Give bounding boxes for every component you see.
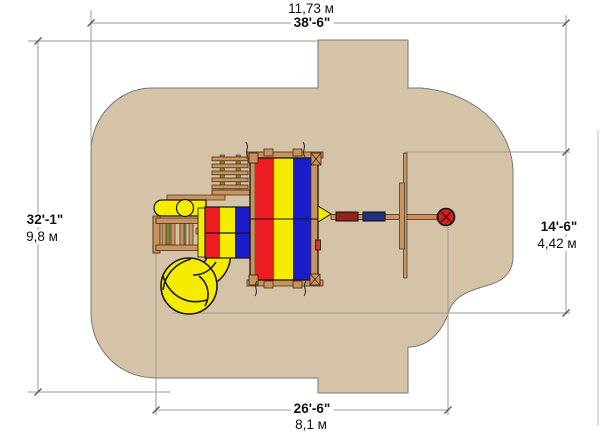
swing-seat-red <box>336 212 358 221</box>
right-dimension-imperial: 14'-6" <box>538 220 581 234</box>
left-dimension-imperial: 32'-1" <box>24 213 67 227</box>
tire-swing <box>438 209 455 226</box>
top-dimension-imperial: 38'-6" <box>291 16 334 30</box>
small-striped-canopy <box>196 207 250 258</box>
large-striped-canopy <box>246 142 331 296</box>
bottom-dimension-metric: 8,1 м <box>292 418 330 432</box>
slide-hump <box>177 200 194 217</box>
swing-frame-bar <box>400 183 405 249</box>
playground-plan: 11,73 м 38'-6" 32'-1" 9,8 м 14'-6" 4,42 … <box>0 0 600 436</box>
bottom-dimension-imperial: 26'-6" <box>291 402 334 416</box>
plan-drawing <box>0 0 600 436</box>
swing-seat-blue <box>363 212 385 221</box>
right-dimension-metric: 4,42 м <box>534 237 579 251</box>
deck-edge <box>198 208 205 257</box>
left-dimension-metric: 9,8 м <box>23 230 61 244</box>
red-marker <box>316 240 321 250</box>
